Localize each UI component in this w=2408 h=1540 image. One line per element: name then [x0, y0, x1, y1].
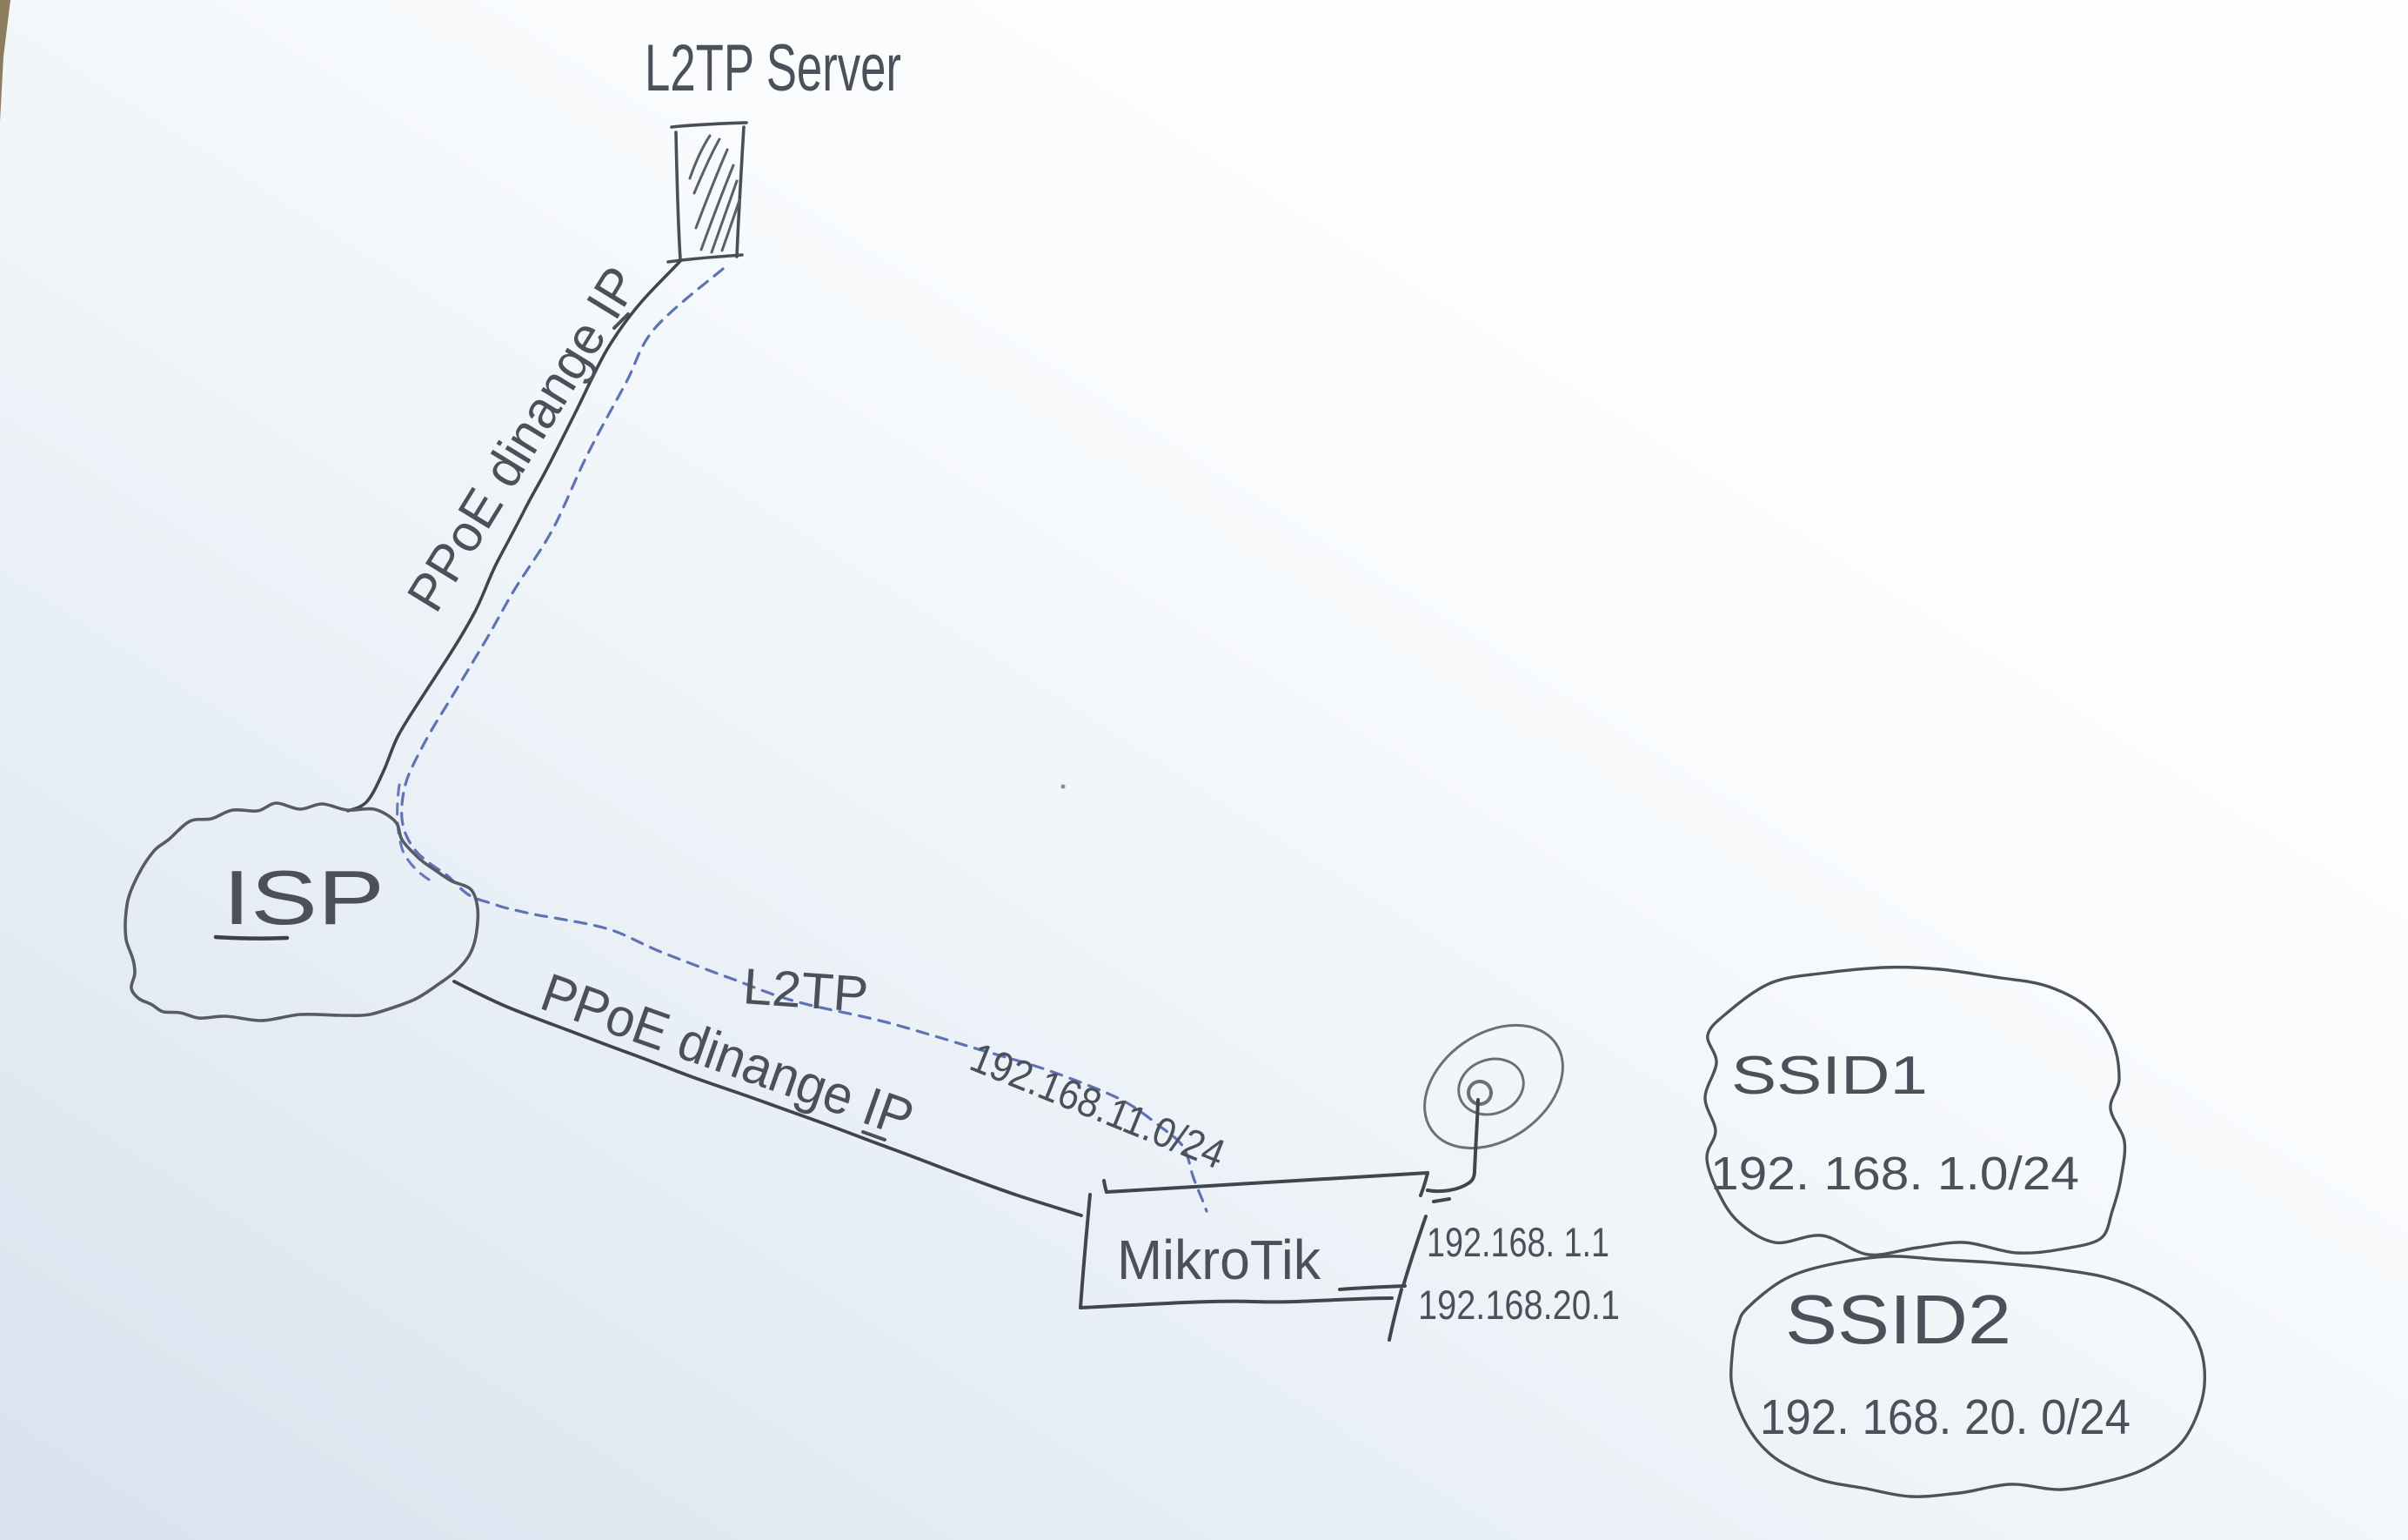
- svg-text:192.168.20.1: 192.168.20.1: [1418, 1282, 1620, 1328]
- svg-text:L2TP Server: L2TP Server: [645, 31, 901, 105]
- svg-text:SSID2: SSID2: [1785, 1281, 2011, 1358]
- svg-text:192.168. 1.1: 192.168. 1.1: [1427, 1219, 1609, 1265]
- svg-text:L2TP: L2TP: [741, 958, 870, 1023]
- svg-text:SSID1: SSID1: [1731, 1046, 1928, 1106]
- svg-text:MikroTik: MikroTik: [1117, 1229, 1321, 1291]
- svg-text:192. 168. 1.0/24: 192. 168. 1.0/24: [1710, 1148, 2079, 1200]
- svg-text:192. 168. 20. 0/24: 192. 168. 20. 0/24: [1760, 1389, 2130, 1445]
- svg-text:ISP: ISP: [223, 854, 385, 941]
